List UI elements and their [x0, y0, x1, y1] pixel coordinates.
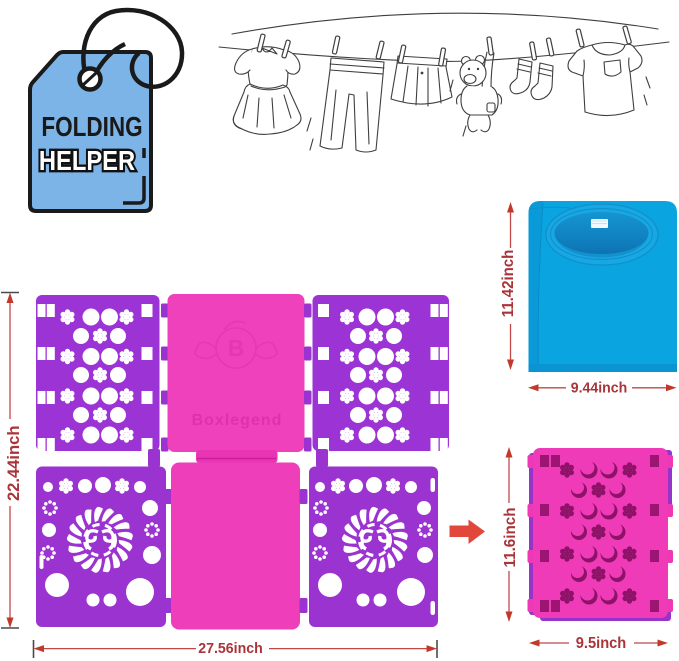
svg-text:9.44inch: 9.44inch	[571, 380, 628, 397]
svg-text:11.6inch: 11.6inch	[502, 508, 519, 568]
svg-text:B: B	[228, 335, 245, 361]
svg-text:11.42inch: 11.42inch	[500, 250, 517, 318]
svg-text:FOLDING: FOLDING	[41, 112, 142, 143]
svg-text:27.56inch: 27.56inch	[198, 640, 263, 657]
svg-text:9.5inch: 9.5inch	[576, 635, 627, 652]
svg-text:Boxlegend: Boxlegend	[192, 412, 283, 429]
svg-text:HELPER: HELPER	[39, 144, 136, 176]
svg-text:22.44inch: 22.44inch	[5, 426, 23, 502]
